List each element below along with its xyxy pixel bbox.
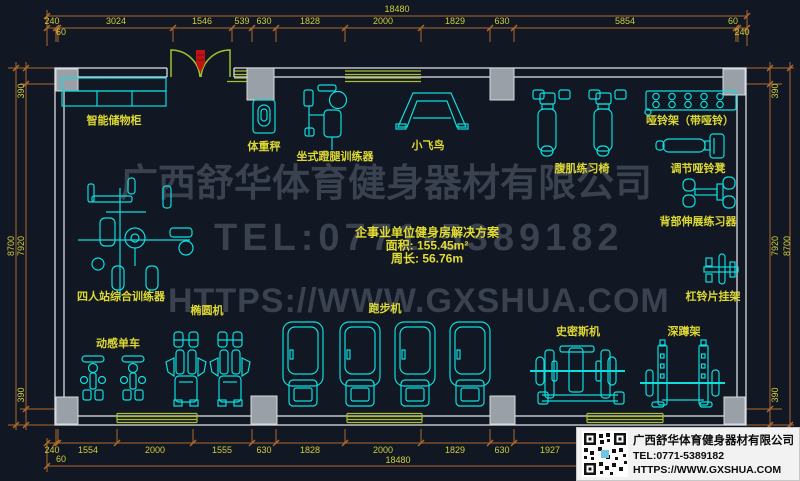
multi-station-icon <box>78 178 193 298</box>
back-extension-icon <box>683 177 735 208</box>
body-scale-icon <box>253 100 275 133</box>
ab-bench-icon <box>533 90 570 156</box>
title-block-tel: TEL:0771-5389182 <box>633 450 794 462</box>
squat-rack-icon <box>640 340 725 407</box>
floor-plan-canvas: 广西舒华体育健身器材有限公司 TEL:0771-5389182 HTTPS://… <box>0 0 800 481</box>
adjustable-bench-icon <box>656 134 724 158</box>
smith-machine-icon <box>530 346 625 404</box>
qr-code-icon <box>582 431 628 477</box>
title-block-url: HTTPS://WWW.GXSHUA.COM <box>633 464 794 476</box>
plan-perimeter: 周长: 56.76m <box>391 250 463 267</box>
treadmill-icon <box>283 322 323 406</box>
plate-rack-icon <box>704 254 738 284</box>
elliptical-icon <box>166 332 206 406</box>
title-block: 广西舒华体育健身器材有限公司 TEL:0771-5389182 HTTPS://… <box>576 427 800 481</box>
leg-press-icon <box>304 85 347 150</box>
entrance-door-icon <box>167 50 234 79</box>
fly-bird-icon <box>396 93 468 129</box>
dumbbell-rack-icon <box>645 91 736 115</box>
spin-bike-icon <box>81 356 106 400</box>
title-block-company: 广西舒华体育健身器材有限公司 <box>633 432 794 448</box>
